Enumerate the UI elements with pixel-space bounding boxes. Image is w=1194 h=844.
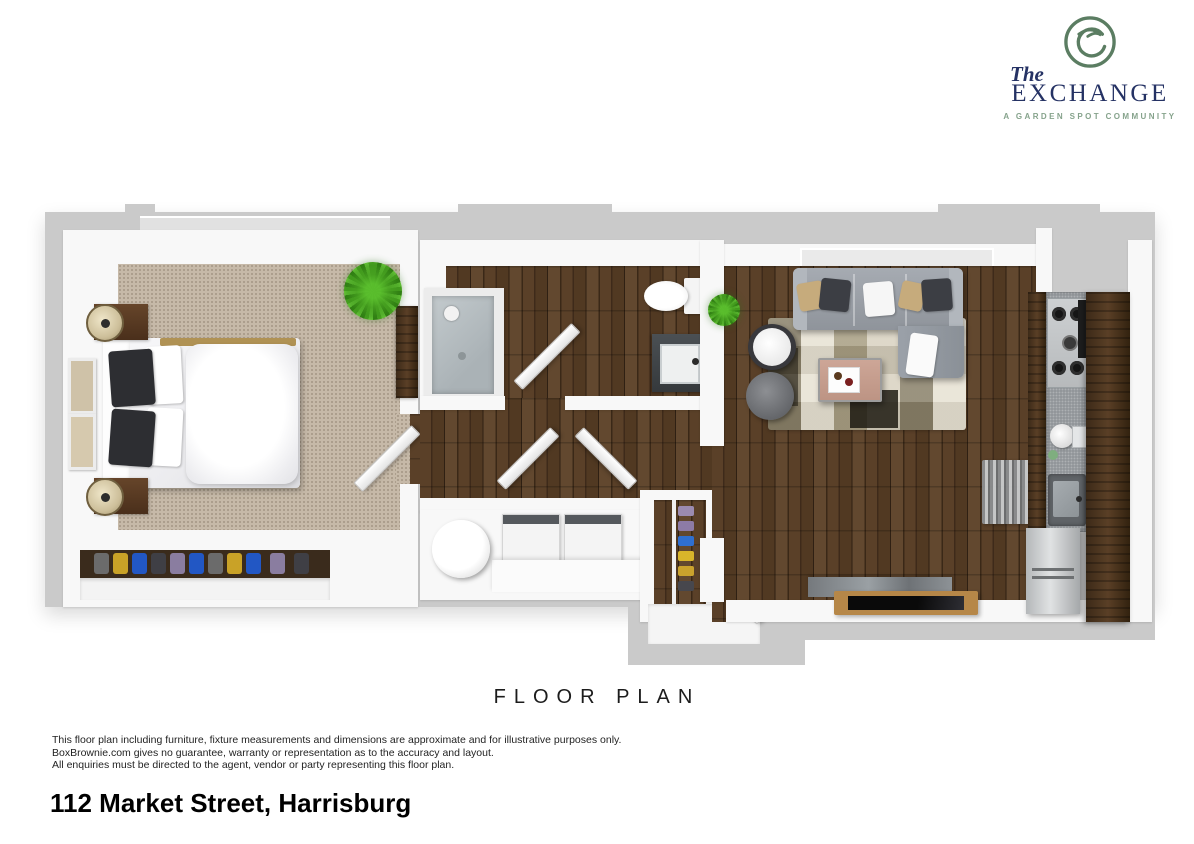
dresser [396,306,418,398]
hanging-clothes [94,553,109,574]
hallway-wall [565,396,715,410]
pantry-cabinet [1086,292,1130,622]
floor-plan-title: FLOOR PLAN [0,686,1194,709]
wall-tab [125,204,155,214]
shoes [678,581,694,591]
coffee-maker [1050,424,1074,448]
laundry-counter [492,560,664,592]
hanging-clothes [270,553,285,574]
bathroom-vanity [652,334,706,392]
refrigerator [1026,528,1080,614]
shoes [678,536,694,546]
shoe-shelf [672,500,676,612]
kitchen-sink [1048,474,1086,526]
sofa-pillow-dark [921,278,953,312]
toilet-bowl [644,281,688,311]
dryer [564,514,622,564]
shower-glass [432,296,494,394]
bedroom-closet-rail [80,550,330,578]
living-window-sill [800,248,994,268]
table-lamp [86,304,124,342]
hallway-wall [420,396,505,410]
burner [1070,361,1084,375]
washer-top [503,515,559,524]
living-left-wall [700,240,724,446]
tv-screen [848,596,964,610]
table-tray [828,367,860,393]
shoes [678,521,694,531]
bedroom-closet-shelf [80,578,330,600]
hanging-clothes [227,553,242,574]
kitchen-item [1048,450,1058,460]
shoes [678,566,694,576]
kitchen-floor-mat [982,460,1030,524]
hallway-floor [420,398,715,500]
hanging-clothes [208,553,223,574]
wall-art-frame [68,358,96,414]
kitchen-cabinet-strip [1028,292,1046,532]
sofa-pillow-dark [818,278,851,313]
living-left-wall-lower [700,538,724,602]
table-lamp [86,478,124,516]
floor-plan-page: The EXCHANGE A GARDEN SPOT COMMUNITY [0,0,1194,844]
disclaimer-line: This floor plan including furniture, fix… [52,734,692,747]
kitchen-right-wall [1128,240,1152,622]
hanging-clothes [189,553,204,574]
burner-center [1062,335,1078,351]
cup [845,378,853,386]
property-address: 112 Market Street, Harrisburg [50,788,411,819]
chaise-pillow-white [905,332,939,377]
shower-head [444,306,459,321]
sofa-cushion-seam [853,274,855,326]
sofa-pillow-white [863,281,896,317]
hanging-clothes [246,553,261,574]
coffee-table [818,358,882,402]
disclaimer-line: All enquiries must be directed to the ag… [52,759,692,772]
potted-plant [344,262,402,320]
wall-art-frame [68,414,96,470]
wall-tab [938,204,1100,214]
shower-drain [458,352,466,360]
disclaimer-line: BoxBrownie.com gives no guarantee, warra… [52,747,692,760]
hanging-clothes [113,553,128,574]
hanging-clothes [294,553,309,574]
burner [1052,307,1066,321]
fridge-handle [1032,576,1074,579]
laundry-basket [432,520,490,578]
disclaimer: This floor plan including furniture, fix… [52,734,692,772]
washer [502,514,560,564]
floor-plan-rendering [0,0,1194,844]
ottoman-pouf [746,372,794,420]
hanging-clothes [170,553,185,574]
hanging-clothes [132,553,147,574]
tv-board [834,591,978,615]
shoes [678,506,694,516]
bed-pillow-dark [108,409,156,468]
burner [1052,361,1066,375]
shoes [678,551,694,561]
fridge-handle [1032,568,1074,571]
armchair-cushion [753,328,791,366]
round-armchair [748,324,796,370]
wall-tab [458,204,612,214]
vanity-faucet [692,358,699,365]
dryer-top [565,515,621,524]
potted-plant-small [708,294,740,326]
bed-duvet [186,344,298,484]
shower-enclosure [424,288,504,402]
hanging-clothes [151,553,166,574]
cup [834,372,842,380]
bed-pillow-dark [108,349,156,408]
kitchen-wall-jog [1036,228,1052,296]
sink-faucet [1076,496,1082,502]
